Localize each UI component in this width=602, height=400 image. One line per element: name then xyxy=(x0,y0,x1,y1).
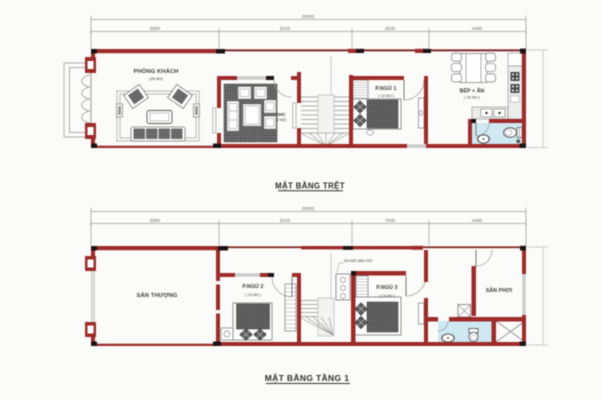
svg-text:SHC: SHC xyxy=(276,112,286,117)
svg-text:( 13 M2 ): ( 13 M2 ) xyxy=(378,93,395,98)
svg-text:( 16 M2 ): ( 16 M2 ) xyxy=(464,95,481,100)
svg-text:20000: 20000 xyxy=(302,14,315,19)
svg-text:P.NGỦ 3: P.NGỦ 3 xyxy=(376,284,397,291)
svg-text:3500: 3500 xyxy=(385,26,396,31)
svg-text:20000: 20000 xyxy=(302,206,315,211)
svg-text:NƠI ĐẶT BÀN THỜ: NƠI ĐẶT BÀN THỜ xyxy=(344,258,373,263)
svg-text:6020: 6020 xyxy=(280,218,291,223)
svg-text:MẶT BẰNG TẦNG 1: MẶT BẰNG TẦNG 1 xyxy=(265,373,350,383)
svg-text:5990: 5990 xyxy=(150,26,161,31)
svg-text:4490: 4490 xyxy=(472,26,483,31)
svg-text:SÂN THƯỢNG: SÂN THƯỢNG xyxy=(136,292,177,299)
svg-text:P.NGỦ 2: P.NGỦ 2 xyxy=(242,283,263,290)
svg-text:( 13 M2 ): ( 13 M2 ) xyxy=(245,292,262,297)
svg-text:MẶT BẰNG TRỆT: MẶT BẰNG TRỆT xyxy=(275,182,345,191)
svg-text:BẾP + ĂN: BẾP + ĂN xyxy=(460,88,485,95)
svg-text:4490: 4490 xyxy=(472,218,483,223)
svg-text:6020: 6020 xyxy=(280,26,291,31)
svg-text:(28 M2): (28 M2) xyxy=(149,76,163,81)
svg-text:5980: 5980 xyxy=(150,218,161,223)
svg-text:(3 M2): (3 M2) xyxy=(276,118,286,122)
svg-text:P.NGỦ 1: P.NGỦ 1 xyxy=(375,85,396,92)
svg-text:SÂN PHƠI: SÂN PHƠI xyxy=(486,287,513,294)
svg-text:PHÒNG KHÁCH: PHÒNG KHÁCH xyxy=(134,67,179,75)
svg-text:7500: 7500 xyxy=(385,218,396,223)
svg-text:( 13 M2 ): ( 13 M2 ) xyxy=(379,293,396,298)
